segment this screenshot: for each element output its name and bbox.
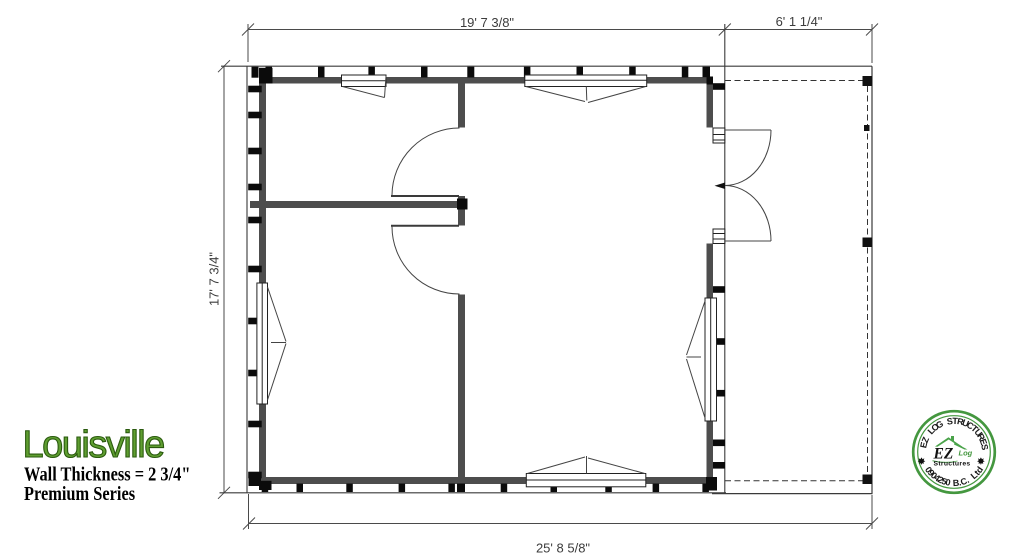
svg-text:25' 8 5/8": 25' 8 5/8" [536, 541, 590, 554]
svg-text:Louisville: Louisville [23, 424, 165, 466]
svg-text:19' 7 3/8": 19' 7 3/8" [460, 15, 514, 30]
svg-text:Log: Log [959, 449, 973, 458]
svg-text:Premium Series: Premium Series [24, 483, 135, 505]
svg-text:17' 7 3/4": 17' 7 3/4" [207, 252, 222, 306]
svg-text:Wall Thickness = 2 3/4": Wall Thickness = 2 3/4" [24, 463, 190, 485]
svg-text:Structures: Structures [934, 461, 971, 468]
svg-text:6' 1 1/4": 6' 1 1/4" [776, 14, 823, 29]
